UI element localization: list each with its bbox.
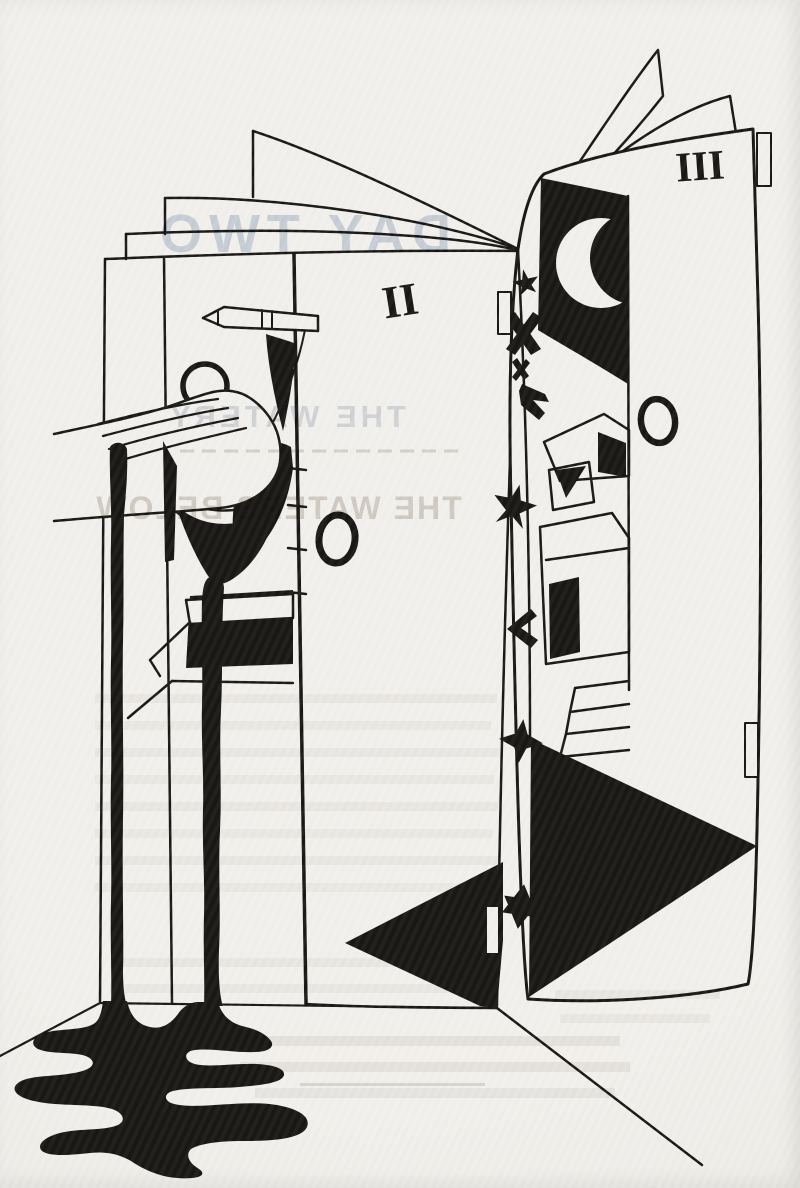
- floor-line: [100, 1003, 497, 1008]
- house-doorway: [549, 577, 580, 659]
- ghost-heading2: THE WATERS BELOW: [94, 490, 461, 526]
- hinge: [498, 292, 511, 334]
- book-page: II III DAY TWO THE WATERY THE WATERS BEL…: [0, 0, 800, 1188]
- ghost-heading1: THE WATERY: [166, 399, 406, 434]
- numeral-right-door: III: [674, 142, 726, 191]
- right-corner-diagonal: [497, 1008, 702, 1165]
- hinge: [745, 723, 758, 777]
- sill-edge-diagonal: [150, 622, 190, 676]
- hinge: [757, 133, 771, 186]
- ghost-title: DAY TWO: [153, 204, 451, 264]
- right-door: [510, 129, 761, 1001]
- hinge: [486, 906, 499, 954]
- numeral-middle-door: II: [378, 273, 421, 329]
- ghost-underline: [300, 1083, 485, 1086]
- pencil: [203, 307, 318, 331]
- interior-sill-line: [172, 681, 293, 683]
- illustration: II III DAY TWO THE WATERY THE WATERS BEL…: [0, 0, 800, 1188]
- ink-drip-right: [202, 577, 224, 1006]
